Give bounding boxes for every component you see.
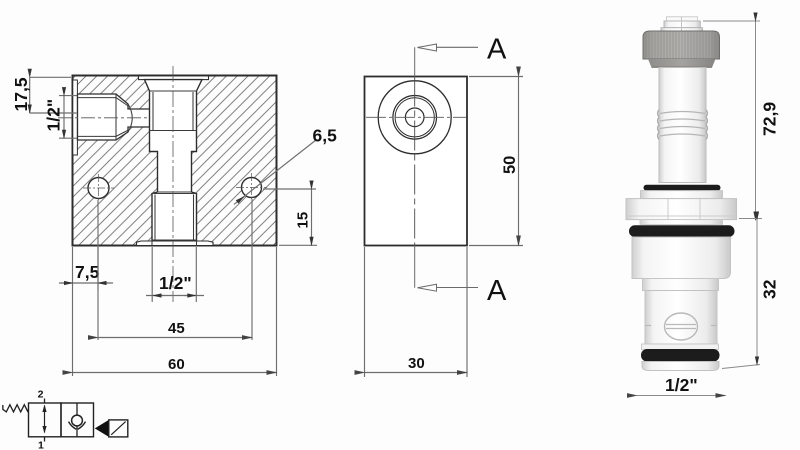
svg-text:32: 32 [760,279,780,299]
svg-text:50: 50 [501,156,519,174]
svg-text:1/2": 1/2" [44,99,64,132]
svg-text:1: 1 [38,440,44,450]
svg-text:17,5: 17,5 [11,77,31,111]
svg-text:45: 45 [168,320,185,337]
svg-text:7,5: 7,5 [75,262,100,282]
svg-text:1/2": 1/2" [159,273,192,293]
svg-text:A: A [487,275,507,307]
svg-text:30: 30 [408,355,425,372]
svg-text:A: A [487,34,507,66]
svg-text:1/2": 1/2" [665,375,698,395]
svg-text:72,9: 72,9 [760,102,780,136]
svg-text:6,5: 6,5 [313,126,338,146]
svg-text:2: 2 [38,389,44,401]
svg-text:60: 60 [168,356,185,373]
svg-text:15: 15 [295,212,312,229]
